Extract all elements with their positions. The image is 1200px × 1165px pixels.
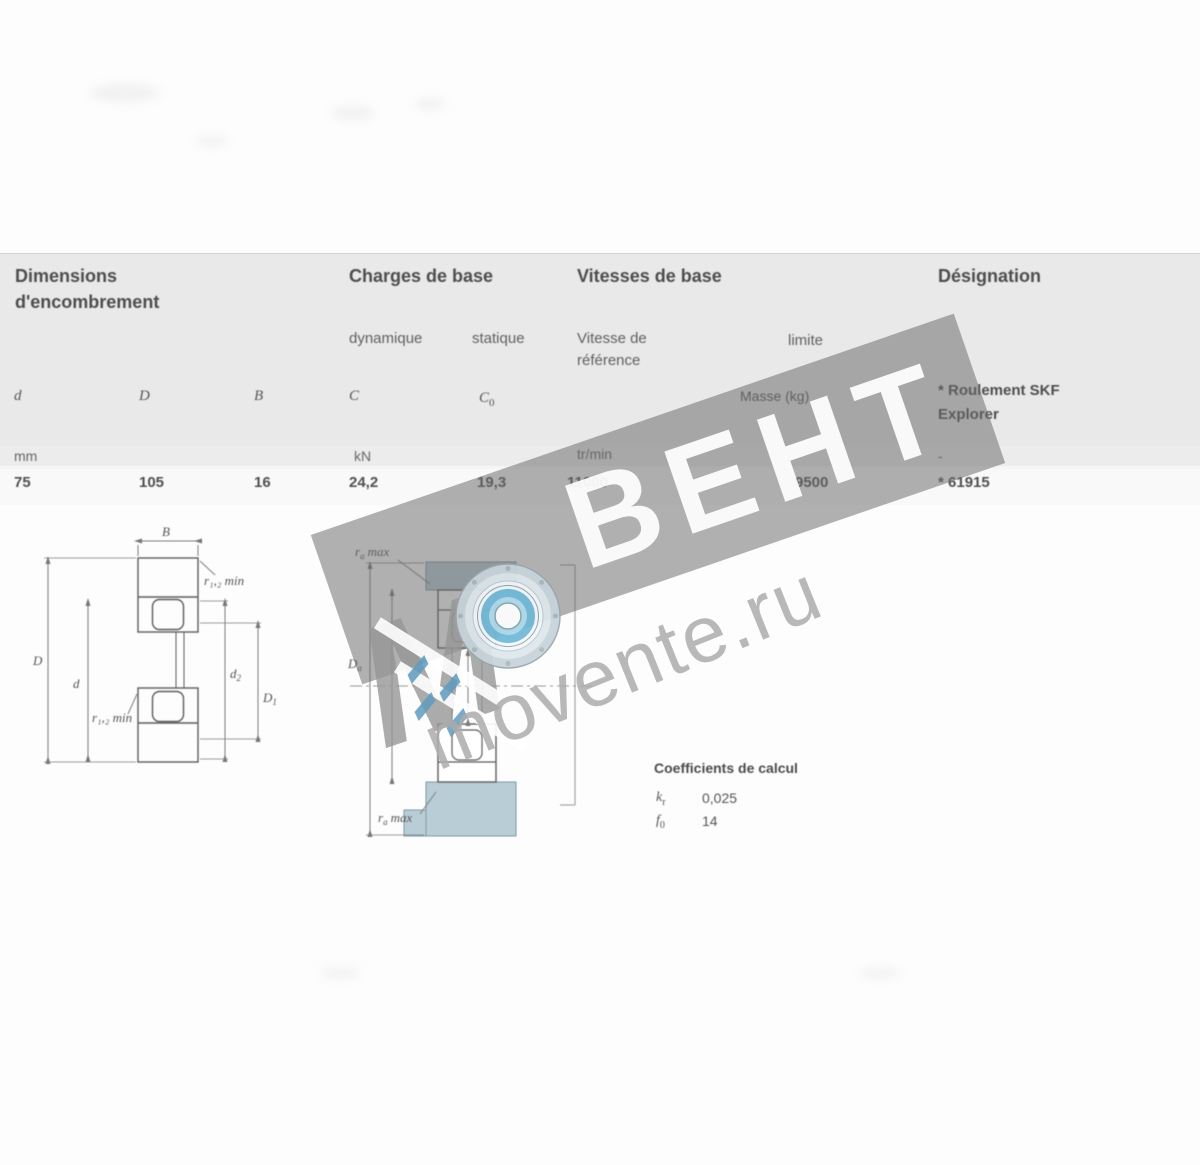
dim-label-B: B bbox=[162, 524, 170, 539]
bearing-catalog-page: Dimensions d'encombrement Charges de bas… bbox=[0, 0, 1200, 1165]
dim-label-D1-sub: 1 bbox=[272, 697, 277, 707]
dim-label-ra-bottom-suffix: max bbox=[391, 810, 413, 825]
dim-label-ra-bottom: ramax bbox=[378, 810, 412, 827]
dim-label-d: d bbox=[73, 676, 80, 691]
dim-label-D: D bbox=[32, 653, 43, 668]
scan-artifact bbox=[320, 968, 360, 978]
dim-label-d2-sub: 2 bbox=[237, 673, 242, 683]
bearing-cross-section-drawing bbox=[138, 558, 198, 762]
dim-label-ra-bottom-sub: a bbox=[383, 817, 388, 827]
scan-artifact bbox=[860, 968, 900, 978]
dim-label-r12-bottom: r₁,₂ min bbox=[92, 710, 132, 725]
dim-label-d2: d2 bbox=[230, 666, 242, 683]
dim-label-r12-top: r₁,₂ min bbox=[204, 573, 244, 588]
dim-label-D1: D1 bbox=[262, 690, 277, 707]
dim-label-D1-base: D bbox=[262, 690, 273, 705]
